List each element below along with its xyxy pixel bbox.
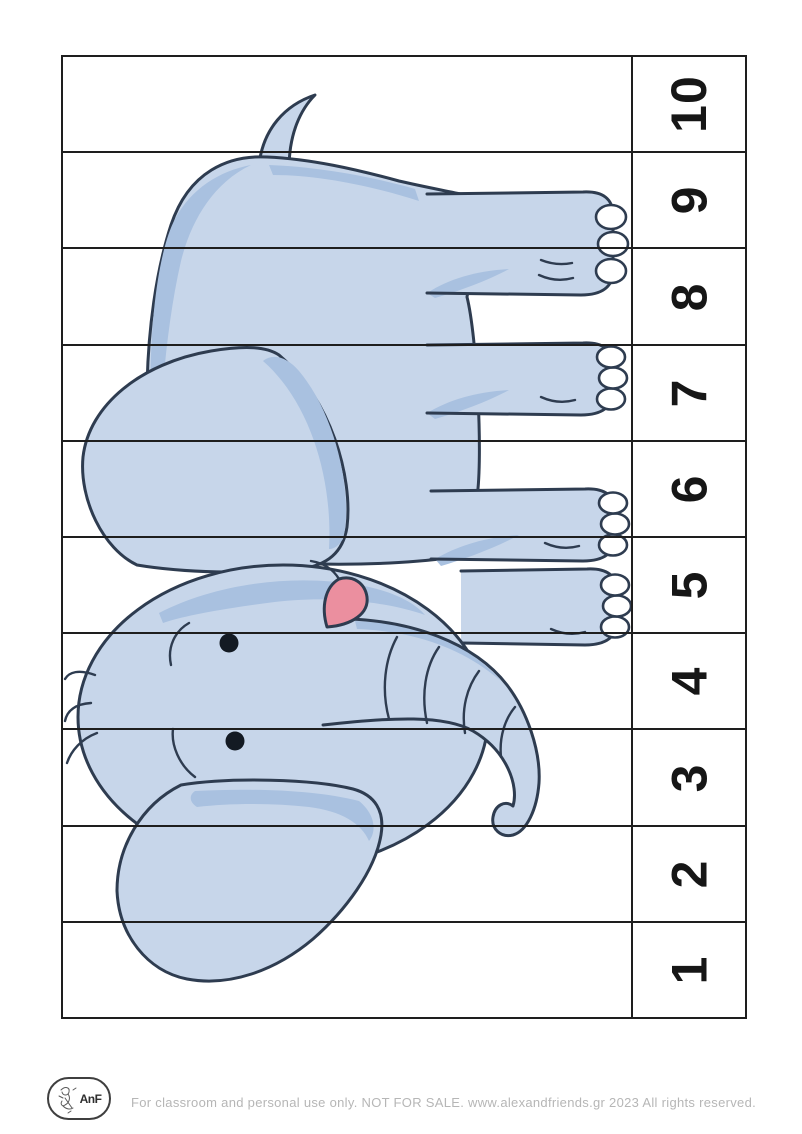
- worksheet-page: 10 9 8 7 6 5 4 3 2 1 AnF For classroom a…: [0, 0, 802, 1134]
- elephant-ear-front: [117, 780, 382, 981]
- eye-left: [226, 732, 245, 751]
- brand-logo: AnF: [47, 1077, 111, 1120]
- strip-number-label: 5: [660, 571, 718, 600]
- strip-number-label: 7: [660, 378, 718, 407]
- logo-doodle-icon: [57, 1084, 79, 1114]
- strip-number-label: 4: [660, 667, 718, 696]
- strip-number-label: 1: [660, 956, 718, 985]
- eye-right: [220, 634, 239, 653]
- strip-number-label: 8: [660, 282, 718, 311]
- strip-number-label: 3: [660, 763, 718, 792]
- license-text: For classroom and personal use only. NOT…: [131, 1095, 756, 1110]
- strip-number-label: 2: [660, 859, 718, 888]
- strip-number-label: 10: [660, 75, 718, 133]
- strip-number-label: 6: [660, 475, 718, 504]
- brand-logo-text: AnF: [80, 1092, 102, 1106]
- strip-number-label: 9: [660, 186, 718, 215]
- puzzle-grid: 10 9 8 7 6 5 4 3 2 1: [61, 55, 747, 1019]
- grid-divider: [631, 57, 633, 1017]
- elephant-illustration: [63, 57, 631, 1017]
